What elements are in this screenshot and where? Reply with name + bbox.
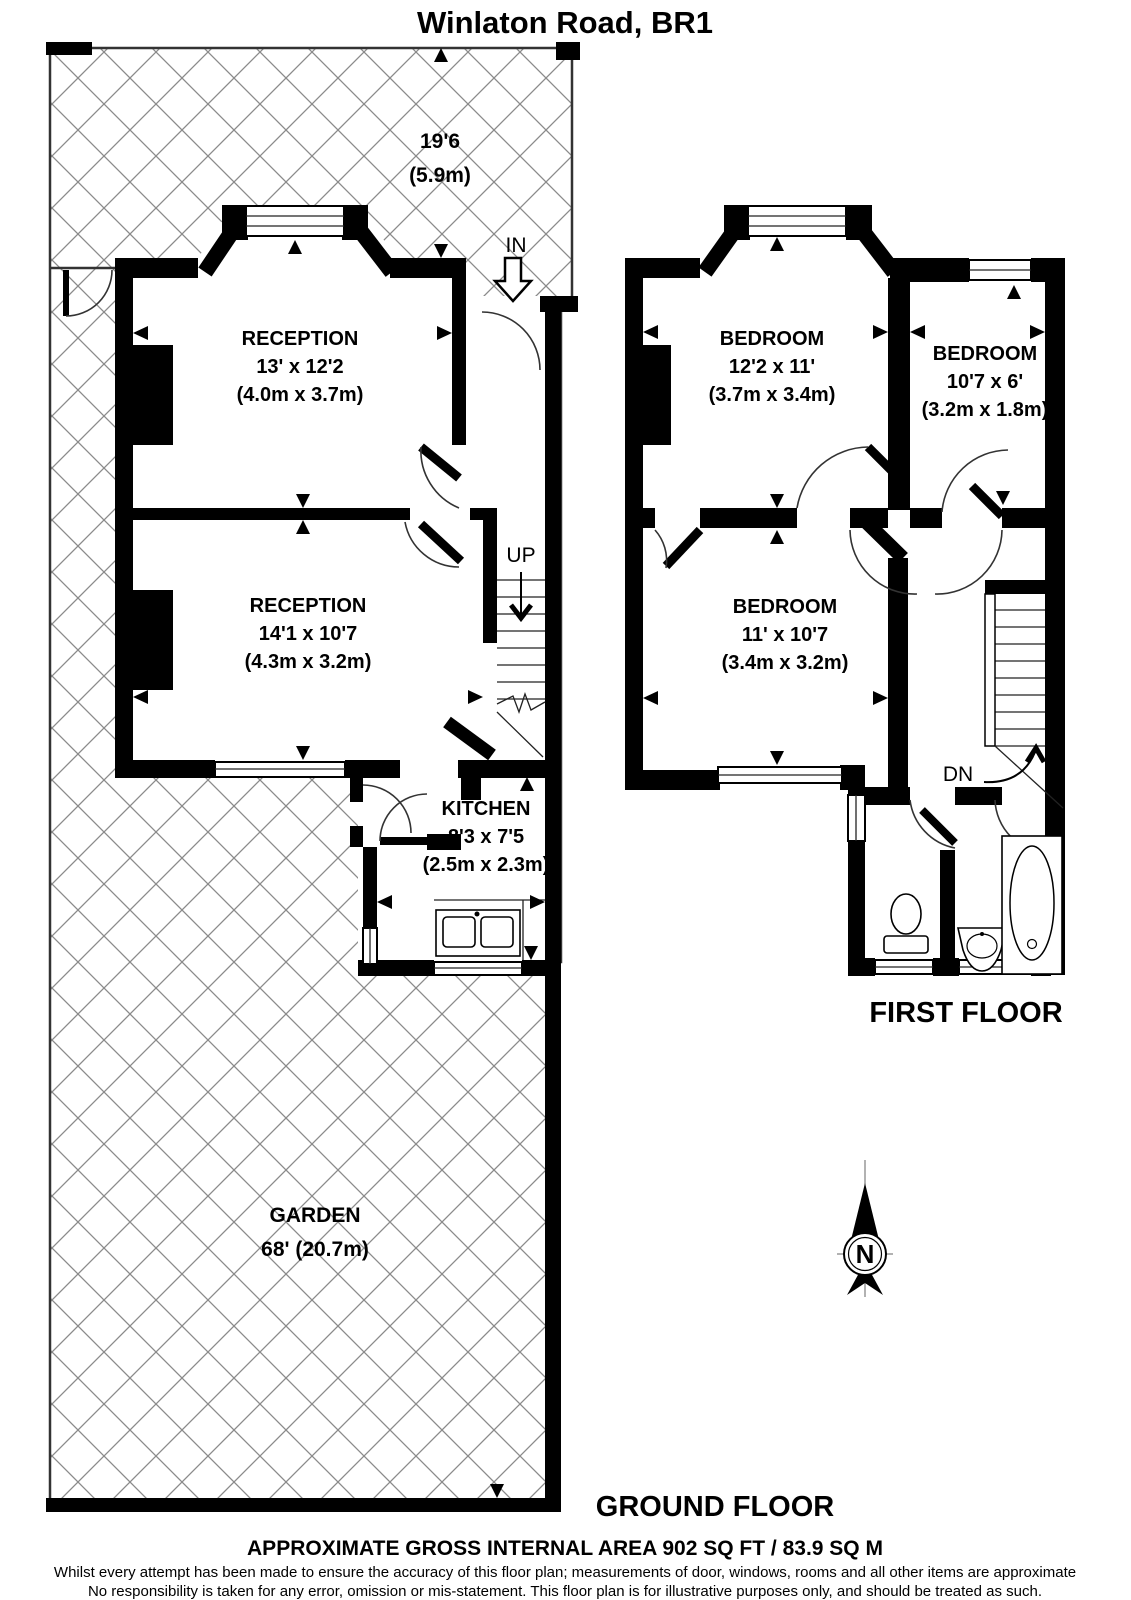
reception1-name: RECEPTION bbox=[242, 328, 359, 350]
bay-window bbox=[246, 206, 344, 236]
garden-corner-post bbox=[556, 42, 580, 60]
reception1-size-ft: 13' x 12'2 bbox=[256, 356, 343, 378]
page-title: Winlaton Road, BR1 bbox=[417, 5, 713, 40]
handrail bbox=[985, 594, 995, 746]
bedroom3-size-m: (3.4m x 3.2m) bbox=[722, 652, 849, 674]
bedroom2-name: BEDROOM bbox=[933, 343, 1037, 365]
garden-length: 68' (20.7m) bbox=[261, 1238, 369, 1261]
disclaimer-line2: No responsibility is taken for any error… bbox=[88, 1583, 1042, 1600]
stairs-up-label: UP bbox=[506, 544, 535, 567]
stairs-dn-label: DN bbox=[943, 763, 973, 786]
area-note: APPROXIMATE GROSS INTERNAL AREA 902 SQ F… bbox=[247, 1537, 883, 1560]
reception2-name: RECEPTION bbox=[250, 595, 367, 617]
disclaimer-line1: Whilst every attempt has been made to en… bbox=[54, 1564, 1076, 1581]
chimney-breast bbox=[133, 345, 173, 445]
bedroom2-size-ft: 10'7 x 6' bbox=[947, 371, 1023, 393]
garden-depth-ft: 19'6 bbox=[420, 130, 460, 153]
bedroom1-name: BEDROOM bbox=[720, 328, 824, 350]
floorplan-drawing: Winlaton Road, BR1 bbox=[0, 0, 1131, 1600]
bedroom2-size-m: (3.2m x 1.8m) bbox=[922, 399, 1049, 421]
floorplan-page: Winlaton Road, BR1 bbox=[0, 0, 1131, 1600]
bedroom3-size-ft: 11' x 10'7 bbox=[742, 624, 828, 646]
ground-floor-label: GROUND FLOOR bbox=[596, 1491, 834, 1523]
garden-wall bbox=[46, 1498, 561, 1512]
compass-north-label: N bbox=[856, 1239, 875, 1269]
entrance-label: IN bbox=[506, 234, 527, 257]
garden-depth-m: (5.9m) bbox=[409, 164, 471, 187]
garden-name: GARDEN bbox=[269, 1204, 360, 1227]
bedroom3-name: BEDROOM bbox=[733, 596, 837, 618]
reception2-size-ft: 14'1 x 10'7 bbox=[259, 623, 358, 645]
reception2-size-m: (4.3m x 3.2m) bbox=[245, 651, 372, 673]
bay-window bbox=[748, 206, 846, 236]
kitchen-name: KITCHEN bbox=[442, 798, 531, 820]
garden-corner-post bbox=[46, 42, 92, 55]
first-floor-label: FIRST FLOOR bbox=[869, 997, 1062, 1029]
chimney-breast bbox=[133, 590, 173, 690]
kitchen-size-m: (2.5m x 2.3m) bbox=[423, 854, 550, 876]
bedroom1-size-m: (3.7m x 3.4m) bbox=[709, 384, 836, 406]
bedroom1-size-ft: 12'2 x 11' bbox=[729, 356, 815, 378]
bathtub bbox=[1002, 836, 1062, 974]
kitchen-size-ft: 8'3 x 7'5 bbox=[448, 826, 524, 848]
garden-wall bbox=[545, 962, 561, 1512]
toilet bbox=[891, 894, 921, 934]
reception1-size-m: (4.0m x 3.7m) bbox=[237, 384, 364, 406]
compass-needle bbox=[851, 1183, 879, 1240]
chimney-breast bbox=[643, 345, 671, 445]
compass-north: N bbox=[837, 1160, 893, 1297]
